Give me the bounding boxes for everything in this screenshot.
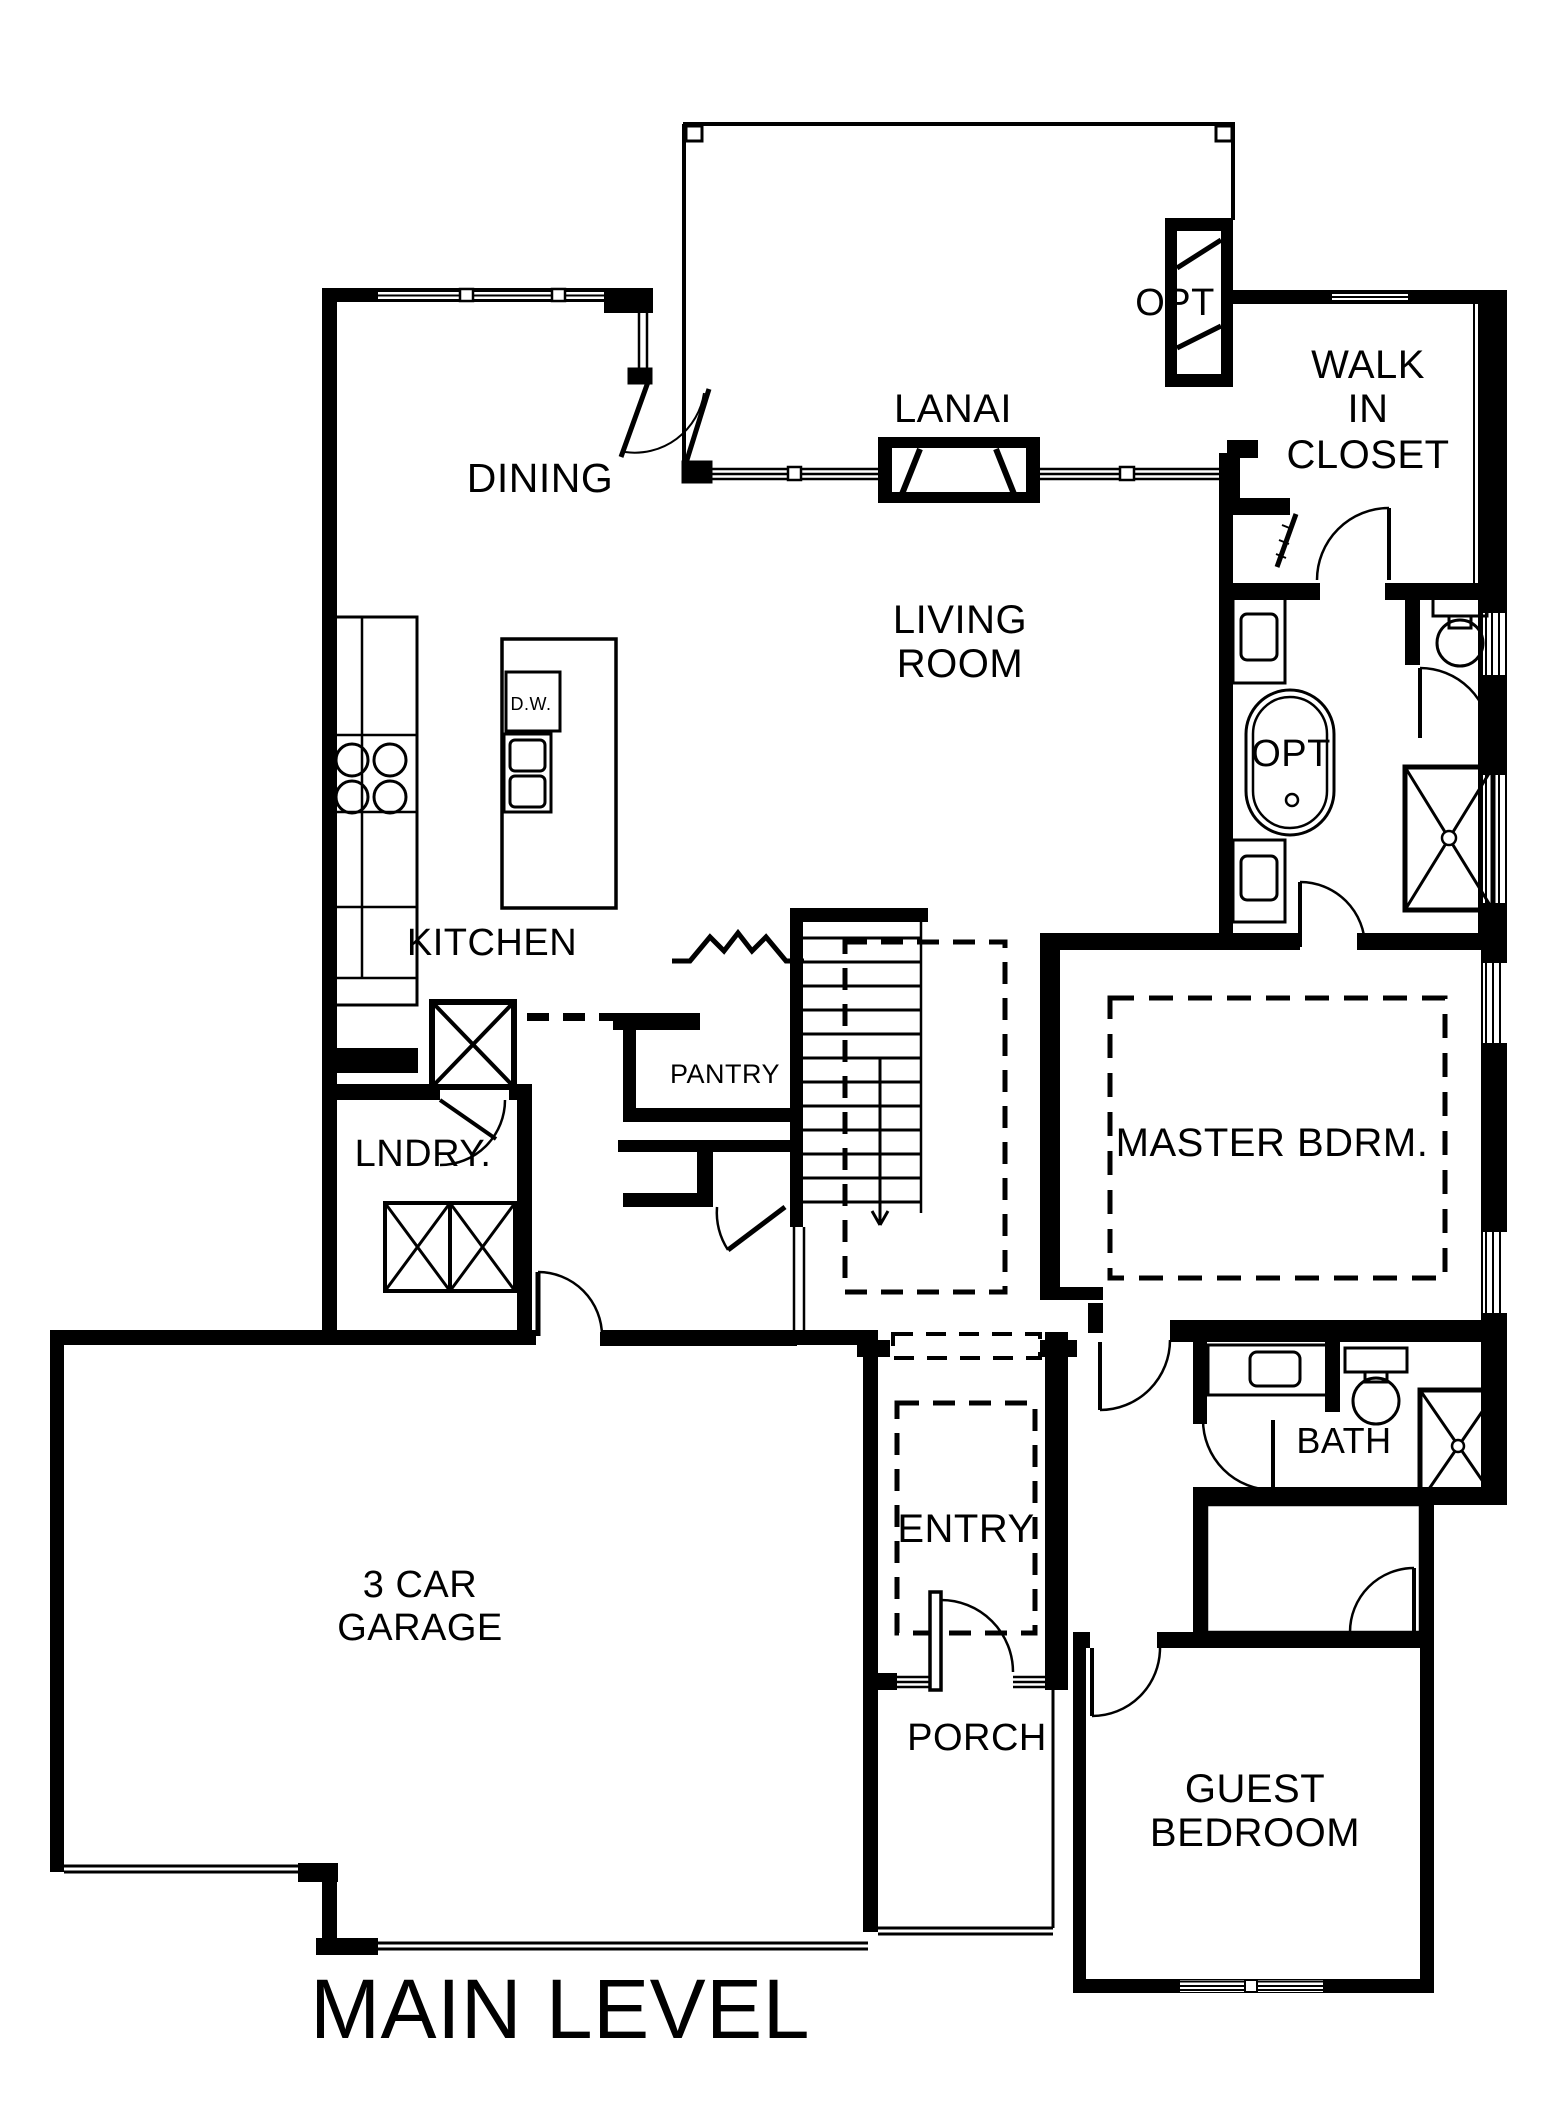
label-walk-in-closet-1: WALK [1311, 343, 1425, 387]
label-garage-2: GARAGE [337, 1607, 503, 1649]
walk-in-closet-door [1276, 508, 1389, 580]
pantry-arch-symbol [672, 933, 804, 961]
west-exterior-wall [322, 288, 337, 1335]
label-walk-in-closet-3: CLOSET [1286, 433, 1449, 477]
stair-opening-dashed [845, 942, 1005, 1292]
label-master-bedroom: MASTER BDRM. [1116, 1121, 1429, 1165]
label-bath: BATH [1296, 1420, 1391, 1461]
label-pantry: PANTRY [670, 1059, 780, 1089]
kitchen-chase [432, 1002, 514, 1087]
label-walk-in-closet-2: IN [1348, 387, 1389, 431]
label-opt-tub: OPT [1251, 733, 1331, 775]
garage-entry-door [538, 1272, 602, 1336]
label-porch: PORCH [907, 1717, 1047, 1759]
label-living-1: LIVING [893, 598, 1027, 642]
guest-sink [1250, 1352, 1300, 1386]
label-dishwasher: D.W. [511, 694, 552, 714]
guest-bedroom-door [1092, 1648, 1160, 1716]
lanai-corner-post [686, 126, 702, 141]
master-bath-door [1300, 882, 1365, 947]
kitchen-counters [336, 617, 417, 1005]
front-door [878, 1592, 1068, 1690]
label-guest-2: BEDROOM [1150, 1811, 1360, 1855]
guest-toilet-bowl [1353, 1378, 1399, 1424]
label-opt-fireplace: OPT [1135, 282, 1215, 324]
kitchen-island [502, 639, 616, 908]
guest-bath [1193, 1332, 1507, 1648]
staircase [790, 908, 928, 1330]
hall-closet-door [717, 1207, 785, 1250]
floor-plan-drawing: LANAI OPT WALK IN CLOSET DINING LIVING R… [0, 0, 1560, 2104]
entry-header-dashed [893, 1334, 1040, 1358]
master-vanity-south [1233, 840, 1285, 922]
label-kitchen: KITCHEN [407, 922, 577, 964]
master-bedroom-door [1100, 1340, 1170, 1410]
floor-plan-page: LANAI OPT WALK IN CLOSET DINING LIVING R… [0, 0, 1560, 2104]
label-garage-1: 3 CAR [363, 1564, 477, 1606]
label-dining: DINING [467, 455, 614, 501]
guest-bath-door [1203, 1420, 1273, 1490]
washer-dryer [385, 1203, 515, 1291]
kitchen-south-wall [324, 1048, 418, 1073]
label-living-2: ROOM [897, 642, 1023, 686]
label-laundry: LNDRY. [355, 1133, 492, 1175]
lanai-corner-post [1216, 126, 1232, 141]
plan-title: MAIN LEVEL [310, 1962, 810, 2056]
label-guest-1: GUEST [1185, 1767, 1325, 1811]
guest-closet [1207, 1505, 1420, 1632]
dining-north-wall [322, 288, 653, 313]
hall-closet-walls [618, 1140, 800, 1207]
guest-toilet-tank [1345, 1348, 1407, 1372]
guest-bedroom-walls [1073, 1487, 1434, 1993]
master-vanity-north [1233, 590, 1285, 683]
label-entry: ENTRY [897, 1507, 1034, 1551]
label-lanai: LANAI [894, 387, 1012, 431]
corner-patio-doors [621, 313, 712, 483]
living-room-fireplace [878, 437, 1040, 503]
